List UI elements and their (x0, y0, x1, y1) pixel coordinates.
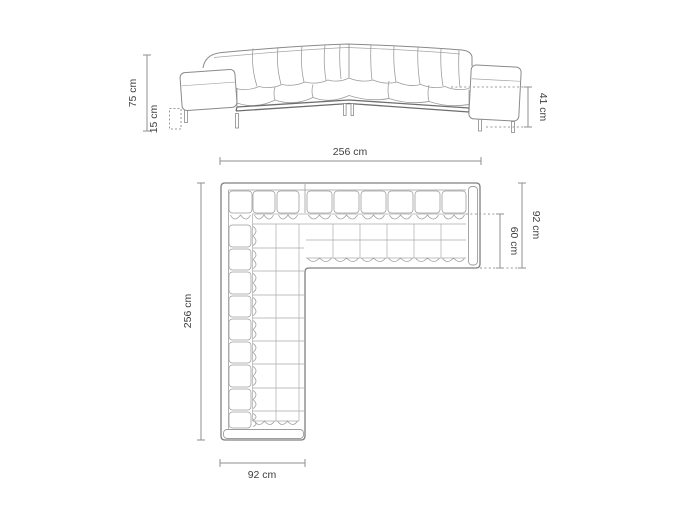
plan-back-cushions-top (229, 191, 466, 213)
plan-chaise-front-scallops (255, 421, 298, 425)
front-leg (479, 119, 482, 132)
length-dimension-line (197, 183, 205, 440)
seat-height-dimension-line (524, 87, 532, 127)
sofa-dimensions-diagram: 75 cm 15 cm 41 cm (0, 0, 700, 525)
back-cushion-scallops (236, 78, 469, 90)
front-height-label: 75 cm (127, 78, 139, 107)
sofa-back-outline (203, 44, 472, 68)
left-armrest (180, 69, 238, 111)
plan-back-cushions-left (229, 225, 251, 428)
plan-plinth (224, 430, 304, 439)
top-depth-label: 92 cm (530, 211, 542, 240)
plan-end-panel (469, 187, 478, 266)
diagram-svg: 75 cm 15 cm 41 cm (0, 0, 700, 525)
top-length-label: 256 cm (182, 294, 194, 329)
front-seat-height-label: 41 cm (537, 93, 549, 122)
chaise-width-dimension-line (220, 459, 305, 467)
seat-depth-dimension-line (496, 214, 504, 268)
plan-top-scallops (231, 215, 465, 219)
front-leg-height-label: 15 cm (148, 104, 160, 133)
plan-arm-front-scallops (308, 258, 465, 262)
front-elevation-view: 75 cm 15 cm 41 cm (127, 44, 549, 133)
front-leg (351, 104, 354, 116)
front-leg (344, 104, 347, 116)
plan-outline (221, 183, 480, 440)
right-armrest (469, 65, 522, 122)
front-leg (236, 114, 239, 129)
plan-seat-grid (253, 214, 467, 421)
top-chaise-width-label: 92 cm (248, 469, 277, 481)
plan-left-scallops (253, 227, 256, 427)
sofa-front-drawing (180, 44, 522, 133)
leg-height-dashed-box (170, 109, 182, 130)
top-width-label: 256 cm (333, 146, 368, 158)
sofa-back-piping (214, 48, 460, 58)
top-seat-depth-label: 60 cm (508, 227, 520, 256)
width-dimension-line (220, 157, 481, 165)
sofa-plan-drawing (221, 183, 480, 440)
plan-shell-lines (229, 184, 467, 430)
top-plan-view: 256 cm 92 cm 60 cm 256 cm 92 cm (182, 146, 542, 481)
plan-dimensions: 256 cm 92 cm 60 cm 256 cm 92 cm (182, 146, 542, 481)
